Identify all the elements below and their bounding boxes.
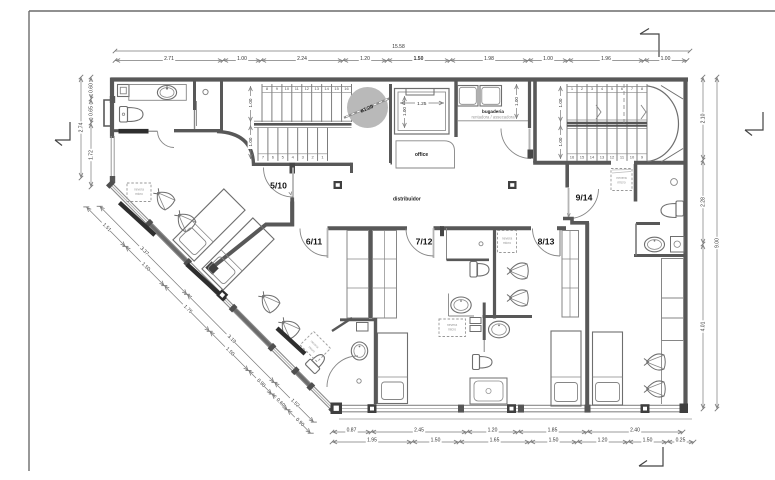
svg-text:1.50: 1.50 <box>549 437 559 443</box>
svg-text:10: 10 <box>630 154 635 159</box>
svg-text:16: 16 <box>570 154 575 159</box>
svg-text:9/14: 9/14 <box>576 193 593 203</box>
svg-text:1.00: 1.00 <box>558 98 563 107</box>
svg-text:1.20: 1.20 <box>360 56 370 62</box>
svg-text:8/13: 8/13 <box>538 237 555 247</box>
svg-text:micro: micro <box>448 328 456 332</box>
svg-text:1.00: 1.00 <box>237 56 247 62</box>
svg-text:2.40: 2.40 <box>630 427 640 433</box>
svg-text:nevera: nevera <box>616 176 626 180</box>
svg-text:0.60: 0.60 <box>89 83 95 93</box>
svg-text:1.20: 1.20 <box>598 437 608 443</box>
svg-text:1.96: 1.96 <box>601 56 611 62</box>
svg-text:1.00: 1.00 <box>661 56 671 62</box>
svg-text:15: 15 <box>580 154 585 159</box>
svg-text:distribuïdor: distribuïdor <box>393 197 421 203</box>
svg-text:2.45: 2.45 <box>414 427 424 433</box>
svg-text:1.00: 1.00 <box>402 107 407 116</box>
svg-text:1.50: 1.50 <box>431 437 441 443</box>
svg-text:10: 10 <box>285 86 290 91</box>
svg-text:1.85: 1.85 <box>548 427 558 433</box>
svg-text:12: 12 <box>305 86 310 91</box>
svg-text:1.00: 1.00 <box>514 97 519 106</box>
svg-text:15.58: 15.58 <box>392 44 405 50</box>
svg-text:12: 12 <box>610 154 615 159</box>
svg-text:2.28: 2.28 <box>701 197 707 207</box>
svg-text:0.65: 0.65 <box>89 106 95 116</box>
svg-text:1.65: 1.65 <box>490 437 500 443</box>
svg-text:1.25: 1.25 <box>417 101 427 107</box>
svg-text:1.98: 1.98 <box>484 56 494 62</box>
svg-text:4.01: 4.01 <box>701 321 707 331</box>
svg-text:bugaderia: bugaderia <box>482 109 504 114</box>
svg-text:0.25: 0.25 <box>676 437 686 443</box>
svg-text:micro: micro <box>135 192 143 196</box>
svg-text:1.00: 1.00 <box>558 137 563 146</box>
svg-text:micro: micro <box>503 241 511 245</box>
svg-text:micro: micro <box>617 181 625 185</box>
svg-text:2.74: 2.74 <box>79 122 85 132</box>
svg-text:6/11: 6/11 <box>306 237 322 247</box>
svg-text:1.50: 1.50 <box>414 56 424 62</box>
svg-text:1.20: 1.20 <box>488 427 498 433</box>
svg-text:14: 14 <box>324 86 329 91</box>
svg-text:1.95: 1.95 <box>367 437 377 443</box>
svg-text:office: office <box>415 152 429 158</box>
svg-text:13: 13 <box>314 86 319 91</box>
svg-text:5/10: 5/10 <box>270 181 287 191</box>
svg-text:13: 13 <box>600 154 605 159</box>
svg-text:1.72: 1.72 <box>89 150 95 160</box>
svg-text:9.00: 9.00 <box>715 238 721 248</box>
svg-text:rentadora / assecadora: rentadora / assecadora <box>471 115 515 120</box>
svg-text:1.00: 1.00 <box>248 98 253 107</box>
svg-text:2.24: 2.24 <box>297 56 307 62</box>
svg-text:16: 16 <box>344 86 349 91</box>
svg-text:2.71: 2.71 <box>164 56 174 62</box>
svg-text:0.87: 0.87 <box>347 427 357 433</box>
svg-text:nevera: nevera <box>447 323 457 327</box>
svg-text:1.00: 1.00 <box>248 137 253 146</box>
svg-text:1.50: 1.50 <box>643 437 653 443</box>
svg-text:2.10: 2.10 <box>701 113 707 123</box>
svg-text:1.00: 1.00 <box>543 56 553 62</box>
svg-text:nevera: nevera <box>502 237 512 241</box>
svg-text:nevera: nevera <box>134 188 144 192</box>
svg-text:15: 15 <box>334 86 339 91</box>
svg-text:7/12: 7/12 <box>416 237 433 247</box>
svg-text:14: 14 <box>590 154 595 159</box>
